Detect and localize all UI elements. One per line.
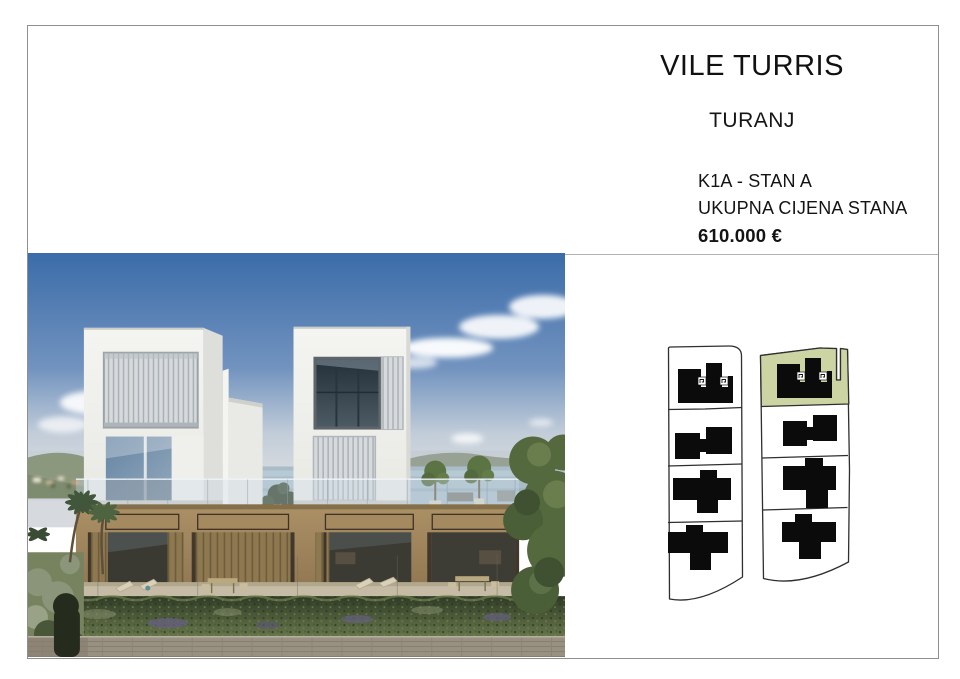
brochure-page: VILE TURRIS TURANJ K1A - STAN A UKUPNA C… bbox=[0, 0, 960, 679]
site-plan bbox=[655, 337, 855, 609]
right-villa bbox=[294, 327, 411, 505]
foreground-bush bbox=[53, 593, 80, 657]
hedge bbox=[52, 596, 565, 642]
price-value: 610.000 € bbox=[698, 225, 782, 247]
page-title: VILE TURRIS bbox=[565, 50, 939, 83]
villa-photo bbox=[28, 253, 565, 657]
left-villa bbox=[84, 328, 223, 505]
page-subtitle: TURANJ bbox=[565, 109, 939, 133]
unit-label: K1A - STAN A bbox=[698, 171, 812, 192]
price-label: UKUPNA CIJENA STANA bbox=[698, 198, 908, 219]
pavement bbox=[28, 636, 565, 657]
glass-balustrade bbox=[76, 478, 519, 504]
right-tree bbox=[503, 435, 565, 615]
right-panel-divider bbox=[565, 254, 938, 255]
